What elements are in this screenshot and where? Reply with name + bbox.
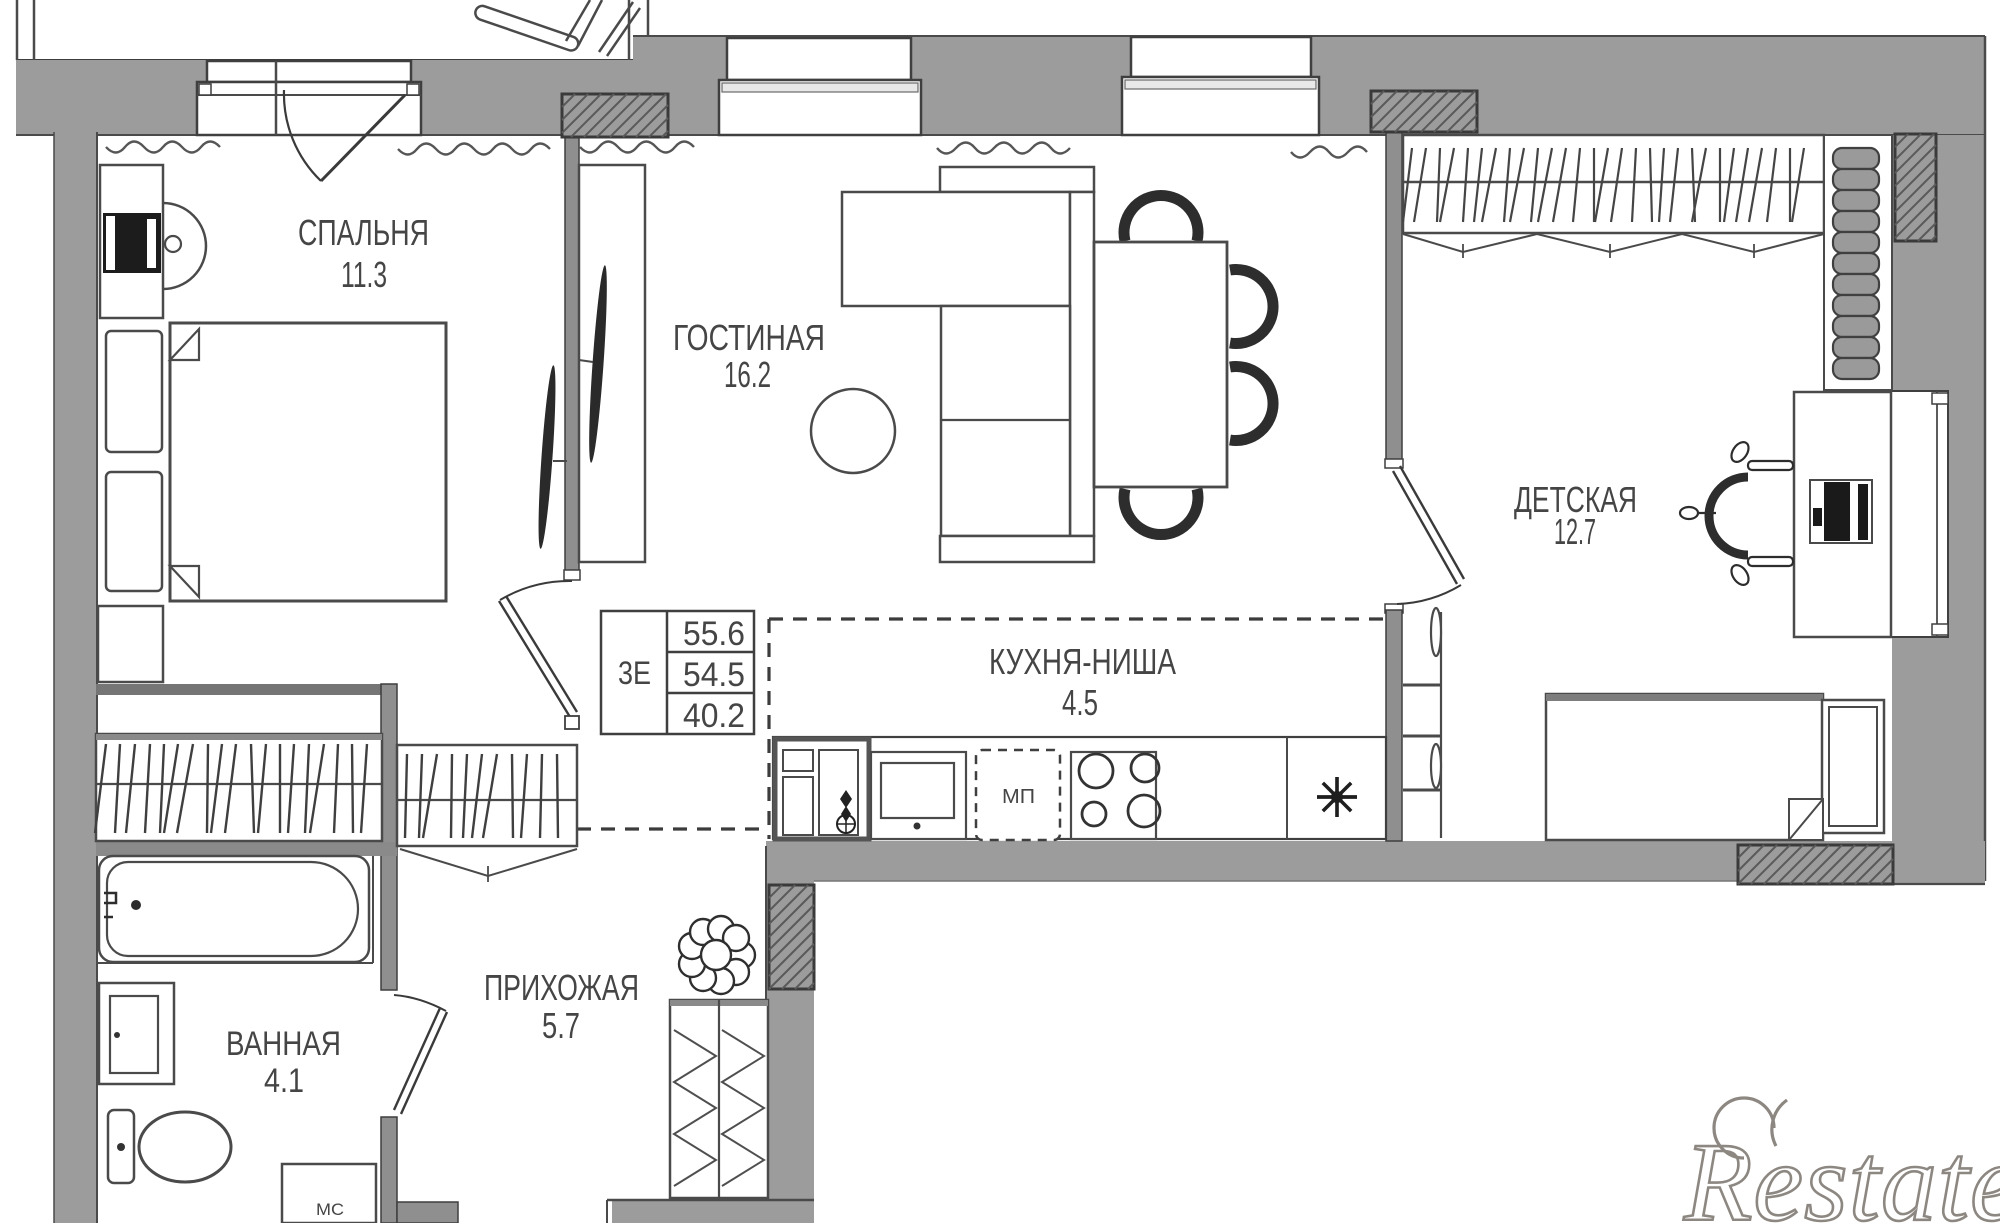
svg-text:3Е: 3Е [618, 655, 651, 691]
svg-text:Restate: Restate [1683, 1121, 2000, 1223]
svg-text:4.1: 4.1 [264, 1062, 304, 1100]
svg-text:55.6: 55.6 [683, 615, 745, 653]
svg-text:МП: МП [1002, 786, 1035, 808]
svg-text:11.3: 11.3 [341, 254, 387, 295]
svg-text:54.5: 54.5 [683, 656, 745, 694]
svg-text:ВАННАЯ: ВАННАЯ [226, 1025, 341, 1063]
svg-text:МС: МС [316, 1200, 344, 1219]
svg-text:4.5: 4.5 [1062, 682, 1098, 723]
svg-text:СПАЛЬНЯ: СПАЛЬНЯ [298, 212, 429, 253]
svg-text:КУХНЯ-НИША: КУХНЯ-НИША [989, 641, 1176, 682]
svg-text:12.7: 12.7 [1554, 511, 1596, 552]
svg-text:40.2: 40.2 [683, 697, 745, 735]
svg-text:ГОСТИНАЯ: ГОСТИНАЯ [673, 317, 825, 358]
svg-text:16.2: 16.2 [724, 354, 771, 395]
svg-text:5.7: 5.7 [542, 1005, 580, 1046]
svg-text:ПРИХОЖАЯ: ПРИХОЖАЯ [484, 967, 639, 1008]
